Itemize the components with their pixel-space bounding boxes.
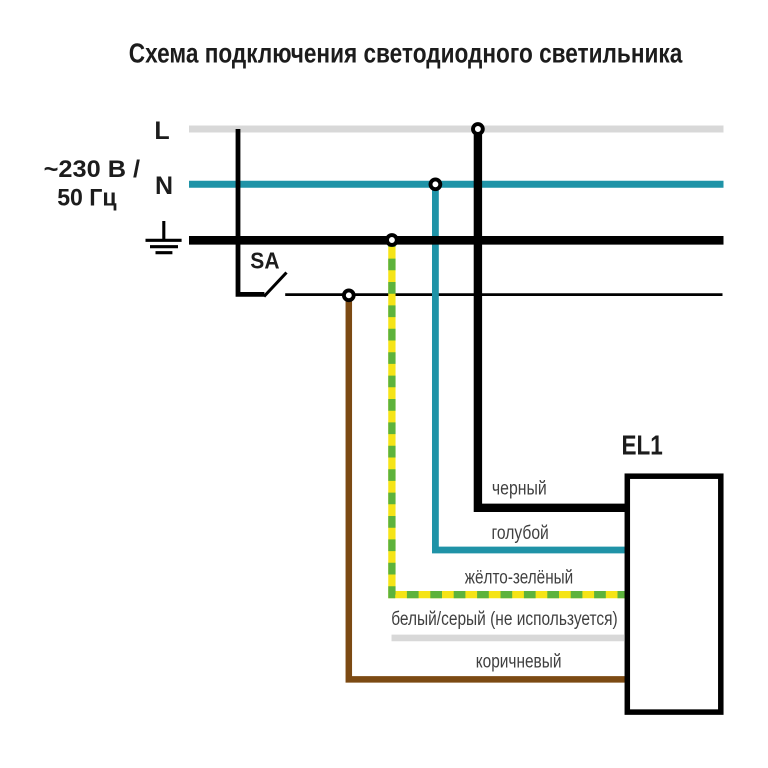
svg-text:коричневый: коричневый — [476, 652, 562, 673]
svg-text:белый/серый (не используется): белый/серый (не используется) — [391, 609, 618, 630]
svg-text:жёлто-зелёный: жёлто-зелёный — [465, 568, 573, 589]
svg-text:Схема подключения светодиодног: Схема подключения светодиодного светильн… — [129, 38, 683, 69]
svg-text:SA: SA — [250, 247, 279, 273]
svg-text:N: N — [155, 172, 173, 200]
svg-text:50 Гц: 50 Гц — [57, 185, 117, 212]
svg-text:черный: черный — [492, 479, 547, 500]
svg-text:~230 В /: ~230 В / — [44, 156, 141, 183]
svg-text:голубой: голубой — [492, 523, 549, 544]
svg-text:L: L — [154, 117, 169, 145]
svg-text:EL1: EL1 — [622, 430, 663, 461]
